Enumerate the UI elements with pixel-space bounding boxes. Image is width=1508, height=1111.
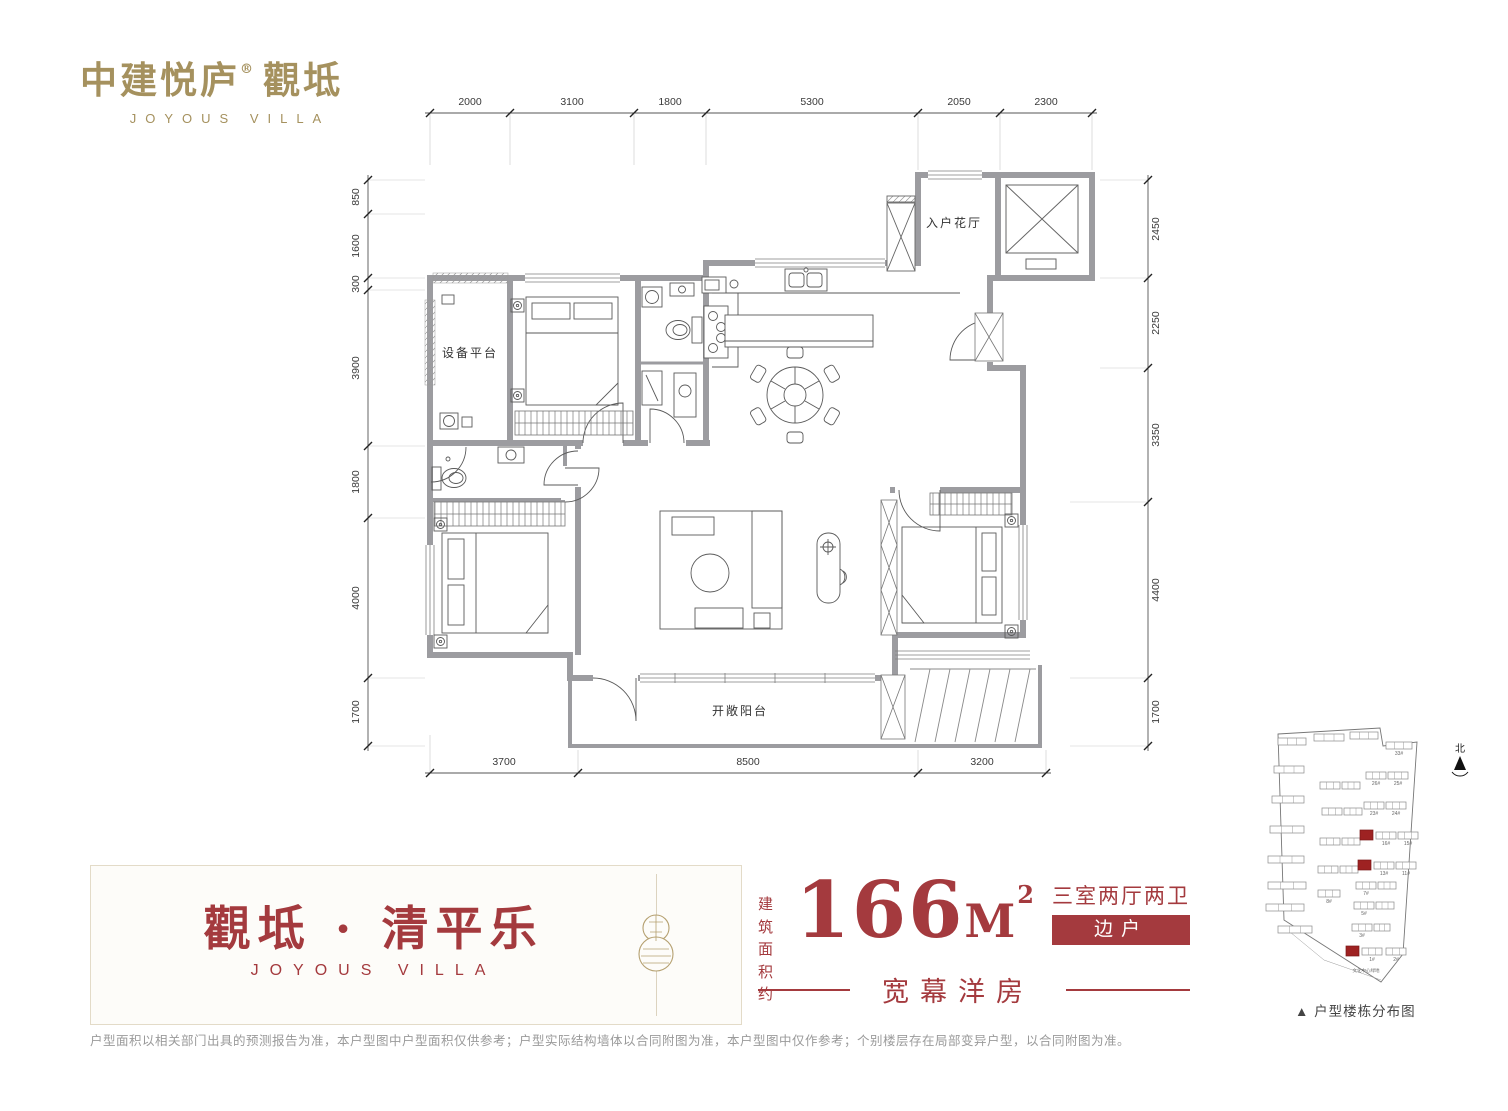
north-arrow-icon: 北: [1452, 743, 1468, 776]
dim-bottom: 3700: [492, 756, 516, 768]
tagline-row: 宽幕洋房: [758, 970, 1190, 1009]
site-building: [1274, 766, 1304, 773]
site-building: [1362, 948, 1382, 955]
site-building-label: 11#: [1402, 871, 1410, 877]
site-building: [1376, 902, 1394, 909]
dim-right: 1700: [1150, 700, 1162, 724]
layout-text: 三室两厅两卫: [1052, 880, 1190, 910]
site-building: [1318, 866, 1338, 873]
site-building-label: 24#: [1392, 811, 1401, 817]
site-building: [1386, 948, 1406, 955]
site-building: [1270, 826, 1304, 833]
dim-top: 2300: [1034, 96, 1058, 108]
site-building: [1314, 734, 1344, 741]
dim-left: 850: [350, 188, 362, 206]
area-value: 166M2: [796, 872, 1036, 950]
dim-top: 3100: [560, 96, 584, 108]
dim-top: 5300: [800, 96, 824, 108]
site-building: [1322, 808, 1342, 815]
room-label-equipment: 设备平台: [442, 345, 498, 360]
site-building: [1378, 882, 1396, 889]
door-arcs: [544, 320, 990, 721]
site-building-label: 25#: [1394, 781, 1403, 787]
wardrobes: [434, 411, 1012, 526]
site-building: [1366, 772, 1386, 779]
site-building: [1268, 856, 1304, 863]
site-building: [1374, 924, 1390, 931]
site-building: [1268, 882, 1306, 889]
site-building: [1320, 838, 1340, 845]
site-building-highlight: [1360, 830, 1373, 840]
area-unit: M: [964, 894, 1017, 948]
dim-top: 1800: [658, 96, 682, 108]
hatch-wall: [433, 273, 508, 283]
disclaimer-text: 户型面积以相关部门出具的预测报告为准，本户型图中户型面积仅供参考；户型实际结构墙…: [90, 1030, 1450, 1049]
balcony-louvers: [910, 669, 1036, 742]
site-building-label: 3#: [1359, 933, 1365, 939]
area-prefix-1: 建筑: [758, 894, 788, 939]
elevator: [1006, 185, 1078, 269]
north-label: 北: [1455, 743, 1465, 755]
sofa-set: [660, 511, 782, 629]
dim-left: 1700: [350, 700, 362, 724]
site-building: [1342, 782, 1360, 789]
logo-cn-main: 中建悦庐: [80, 58, 240, 102]
site-building: [1352, 924, 1372, 931]
dim-left: 4000: [350, 586, 362, 610]
hatch-wall: [425, 300, 435, 385]
site-building-label: 5#: [1361, 911, 1367, 917]
bathroom-top: [642, 283, 702, 417]
site-building: [1272, 796, 1304, 803]
site-building-highlight: [1346, 946, 1359, 956]
site-building-label: 23#: [1370, 811, 1379, 817]
site-building: [1386, 802, 1406, 809]
site-building: [1398, 832, 1418, 839]
site-building-label: 7#: [1363, 891, 1369, 897]
site-building: [1364, 802, 1384, 809]
dim-left: 1600: [350, 234, 362, 258]
site-plan: 33#26#25#23#24#16#15#13#11#8#7#5#3#1#2# …: [1262, 722, 1502, 994]
tagline-rule-right: [1066, 989, 1190, 991]
site-plan-caption: ▲ 户型楼栋分布图: [1295, 1000, 1416, 1020]
site-building-label: 15#: [1404, 841, 1413, 847]
site-building: [1278, 738, 1306, 745]
dim-right: 2250: [1150, 311, 1162, 335]
site-building: [1318, 890, 1340, 897]
duct-shaft: [887, 196, 915, 271]
site-building: [1396, 862, 1416, 869]
site-building-label: 16#: [1382, 841, 1391, 847]
site-building: [1340, 866, 1358, 873]
dim-top: 2050: [947, 96, 971, 108]
dim-bottom: 8500: [736, 756, 760, 768]
dim-bottom: 3200: [970, 756, 994, 768]
bed-top: [511, 297, 618, 405]
site-building: [1350, 732, 1378, 739]
site-building-label: 2#: [1393, 957, 1399, 963]
gold-seal-icon: [633, 899, 679, 991]
site-building-label: 1#: [1369, 957, 1375, 963]
site-building: [1388, 772, 1408, 779]
dim-left: 3900: [350, 356, 362, 380]
site-building: [1342, 838, 1360, 845]
site-building: [1386, 742, 1412, 749]
position-badge: 边户: [1052, 915, 1190, 945]
site-building: [1344, 808, 1362, 815]
site-building: [1356, 882, 1376, 889]
registered-mark: ®: [240, 62, 253, 77]
tagline-text: 宽幕洋房: [850, 970, 1066, 1009]
bed-right: [902, 514, 1018, 638]
site-building: [1320, 782, 1340, 789]
dim-left: 300: [350, 275, 362, 293]
site-building: [1376, 832, 1396, 839]
site-building: [1354, 902, 1374, 909]
site-building-label: 13#: [1380, 871, 1389, 877]
site-building-label: 8#: [1326, 899, 1332, 905]
bathroom-left: [431, 447, 524, 490]
equipment: [440, 295, 472, 429]
tagline-rule-left: [758, 989, 850, 991]
dim-right: 4400: [1150, 578, 1162, 602]
column-boxes: [881, 313, 1003, 739]
project-title: 觀坻 · 清平乐: [91, 890, 656, 959]
floor-plan: 2000 3100 1800 5300 2050 2300 3700 8500 …: [330, 75, 1190, 790]
room-label-entry-hall: 入户花厅: [926, 215, 982, 230]
area-sup: 2: [1017, 880, 1036, 909]
dim-right: 2450: [1150, 217, 1162, 241]
site-building-label: 26#: [1372, 781, 1381, 787]
bed-left: [434, 518, 548, 648]
green-space-label: 文化中心绿地: [1353, 967, 1380, 974]
banner-card: 觀坻 · 清平乐 JOYOUS VILLA: [90, 865, 742, 1025]
site-building-highlight: [1358, 860, 1371, 870]
site-building-label: 33#: [1395, 751, 1404, 757]
dim-top: 2000: [458, 96, 482, 108]
kitchen: [702, 268, 960, 367]
project-subtitle: JOYOUS VILLA: [91, 962, 656, 980]
site-building: [1278, 926, 1312, 933]
poster-page: 中建悦庐®觀坻 JOYOUS VILLA: [0, 0, 1508, 1111]
console-table: [817, 533, 846, 603]
site-building: [1266, 904, 1304, 911]
site-building: [1374, 862, 1394, 869]
room-label-balcony: 开敞阳台: [712, 703, 768, 718]
dim-right: 3350: [1150, 423, 1162, 447]
dim-left: 1800: [350, 470, 362, 494]
dining-table: [749, 347, 840, 443]
